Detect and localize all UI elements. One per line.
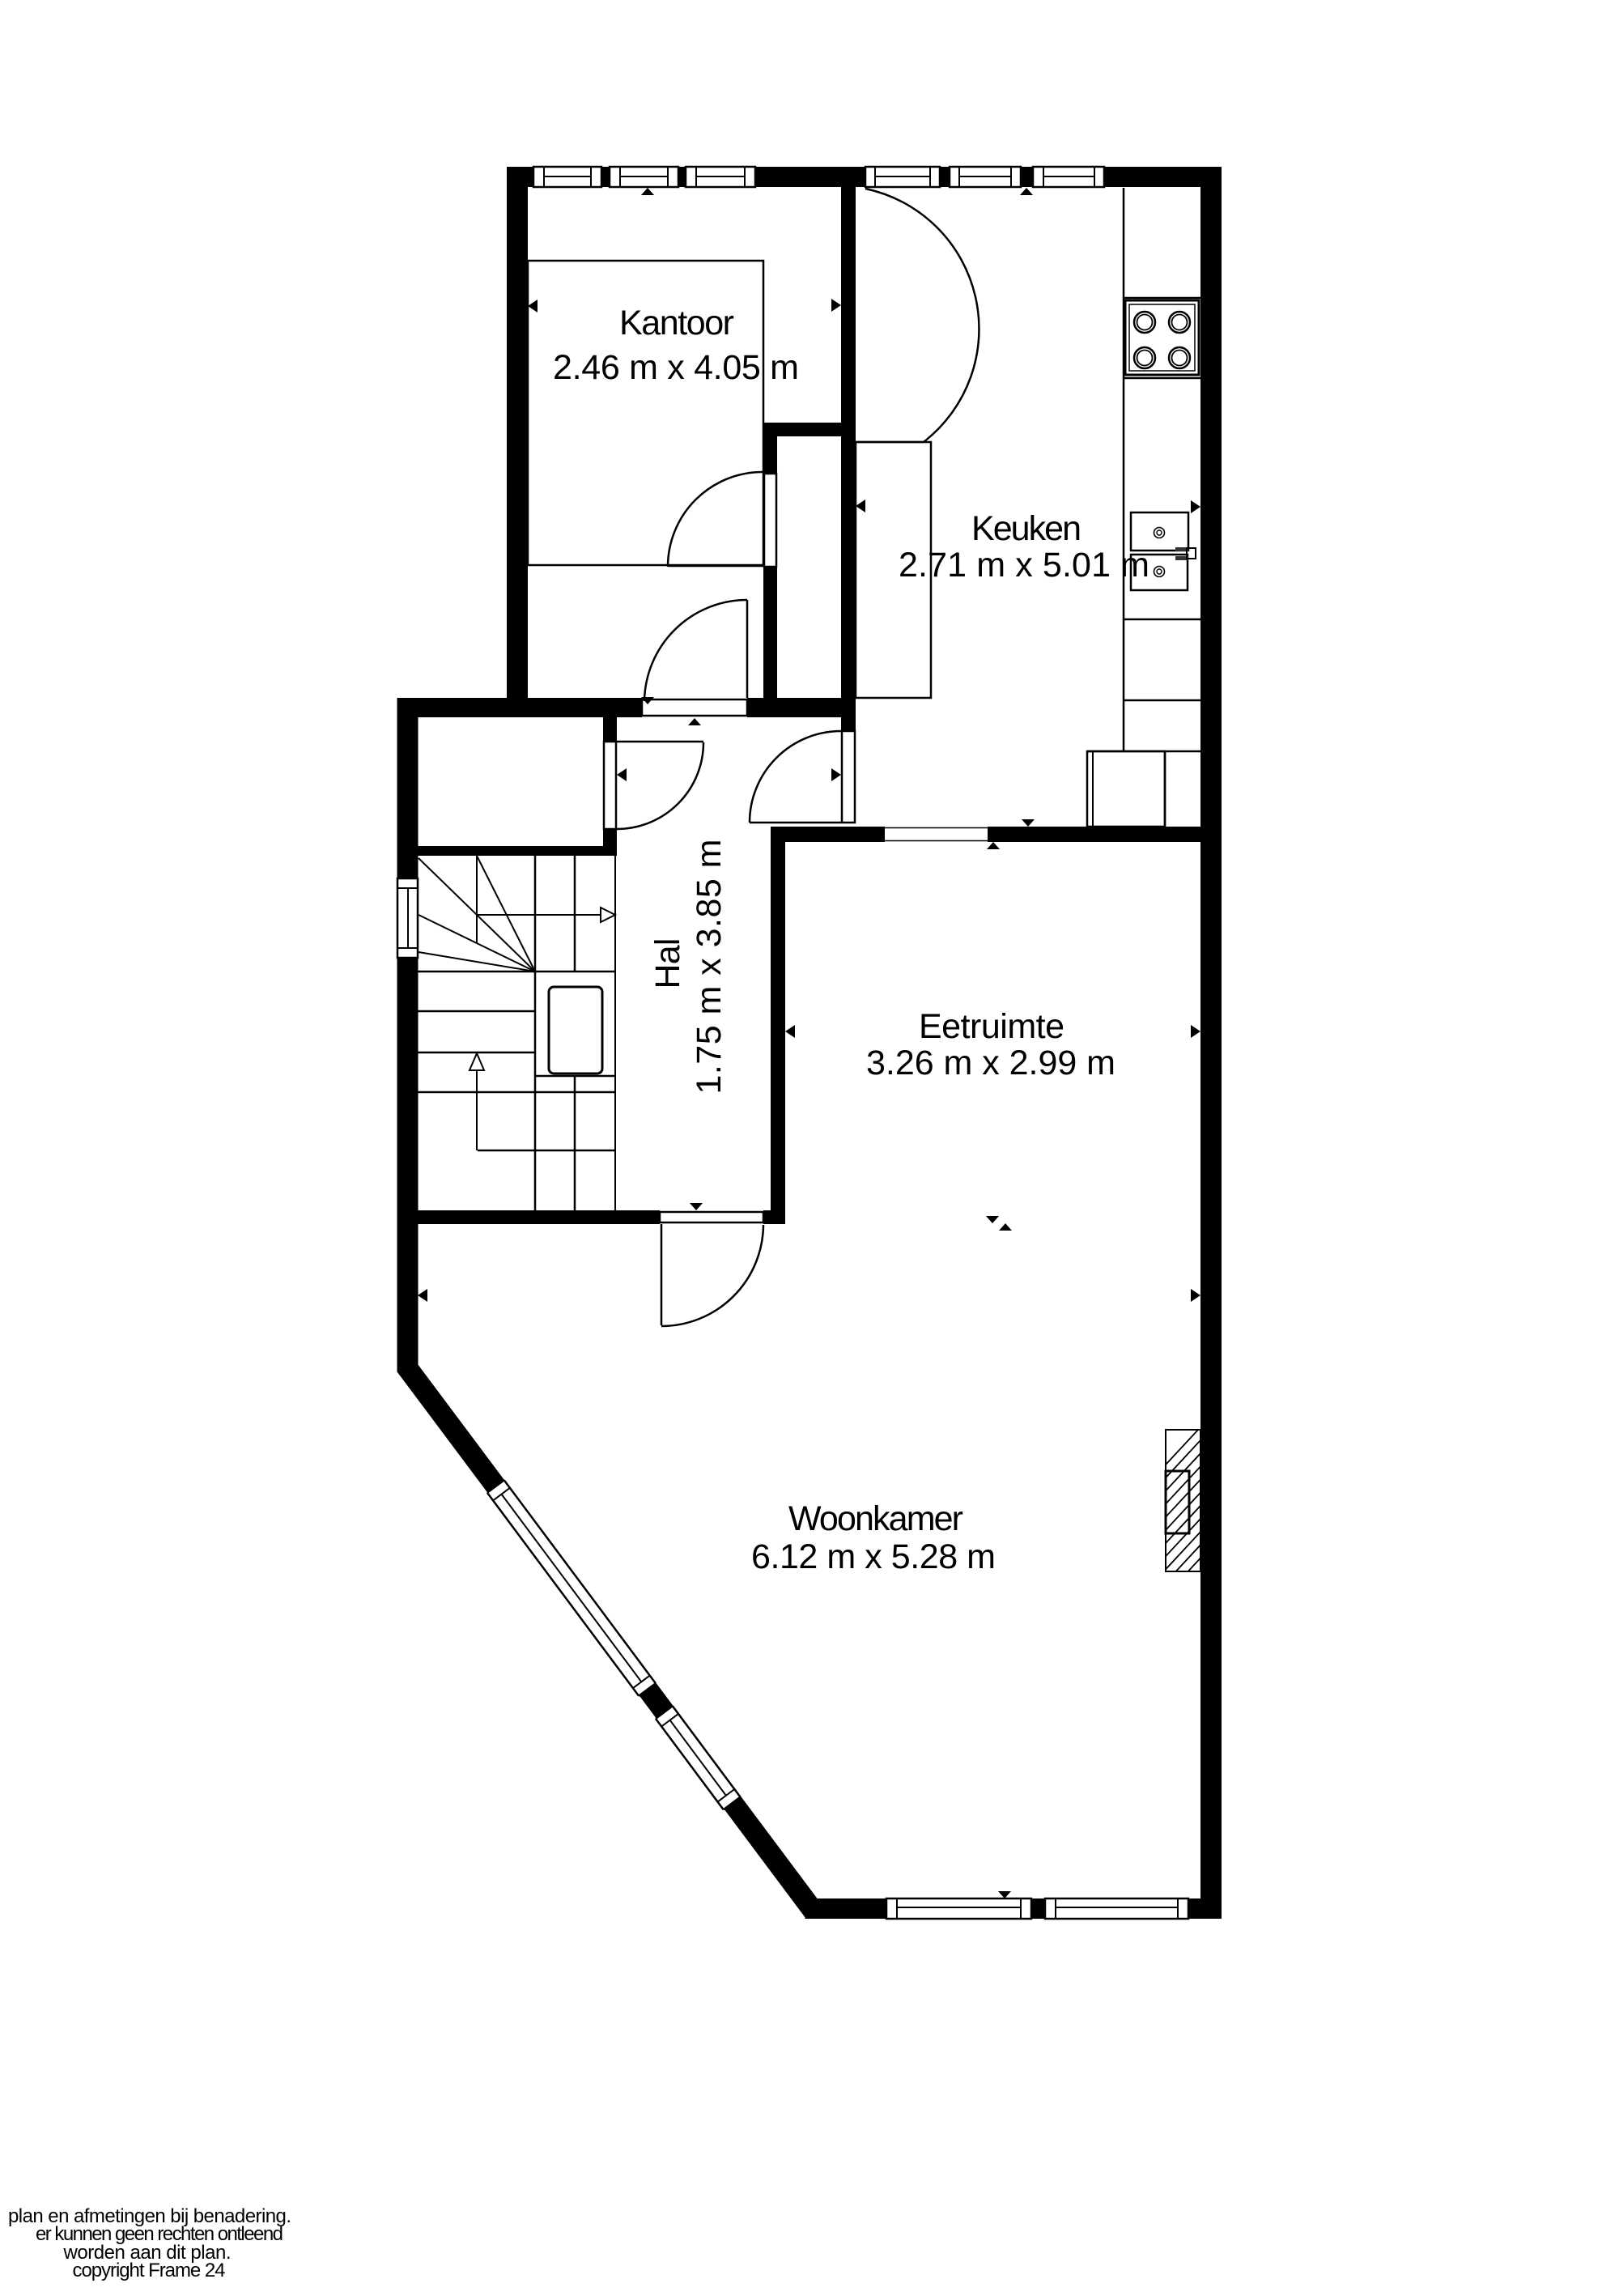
- svg-text:Kantoor: Kantoor: [619, 304, 734, 342]
- svg-text:Keuken: Keuken: [971, 509, 1081, 548]
- svg-text:2.46 m x 4.05 m: 2.46 m x 4.05 m: [553, 348, 799, 387]
- svg-text:2.71 m x 5.01 m: 2.71 m x 5.01 m: [899, 546, 1149, 585]
- svg-text:Hal: Hal: [648, 938, 687, 989]
- svg-text:1.75 m x 3.85 m: 1.75 m x 3.85 m: [690, 840, 729, 1095]
- svg-text:copyright Frame 24: copyright Frame 24: [73, 2260, 226, 2281]
- svg-text:Woonkamer: Woonkamer: [788, 1499, 963, 1538]
- svg-text:3.26 m x 2.99 m: 3.26 m x 2.99 m: [866, 1044, 1115, 1082]
- svg-text:Eetruimte: Eetruimte: [919, 1007, 1064, 1046]
- svg-text:6.12 m x 5.28 m: 6.12 m x 5.28 m: [751, 1537, 996, 1576]
